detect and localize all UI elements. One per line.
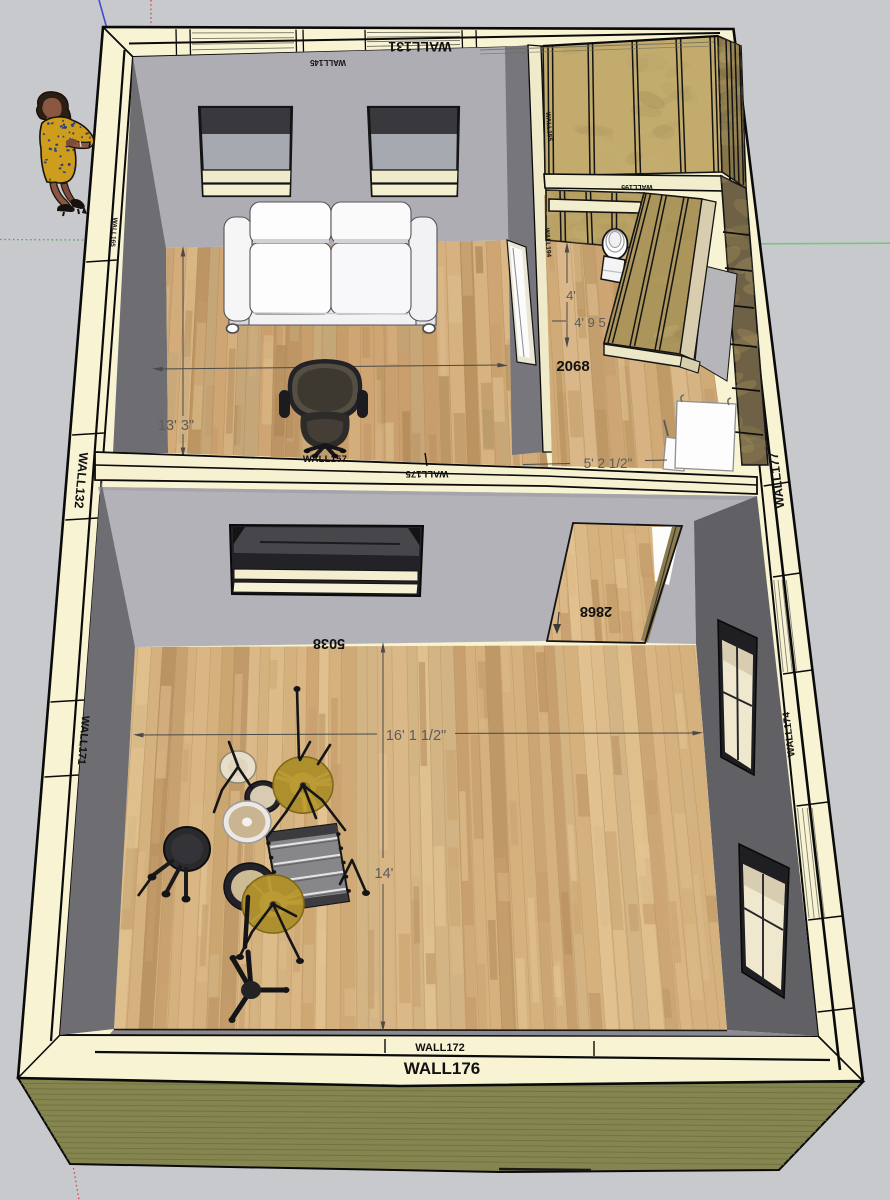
svg-text:13' 3": 13' 3" (158, 418, 194, 434)
svg-text:4' 9 5: 4' 9 5 (574, 315, 605, 330)
svg-text:WALL131: WALL131 (388, 39, 451, 55)
svg-text:2868: 2868 (580, 603, 612, 619)
svg-text:WALL195: WALL195 (621, 183, 653, 190)
svg-text:5' 2 1/2": 5' 2 1/2" (584, 456, 633, 471)
svg-text:16' 1 1/2": 16' 1 1/2" (386, 728, 446, 744)
svg-text:4': 4' (566, 288, 576, 303)
svg-text:WALL157: WALL157 (303, 454, 347, 465)
svg-text:WALL175: WALL175 (405, 468, 448, 479)
svg-text:WALL172: WALL172 (415, 1042, 465, 1054)
svg-text:WALL145: WALL145 (309, 58, 346, 67)
svg-text:14': 14' (375, 866, 394, 882)
svg-text:2068: 2068 (556, 358, 589, 375)
svg-text:WALL176: WALL176 (404, 1059, 481, 1078)
svg-text:5038: 5038 (313, 635, 345, 651)
